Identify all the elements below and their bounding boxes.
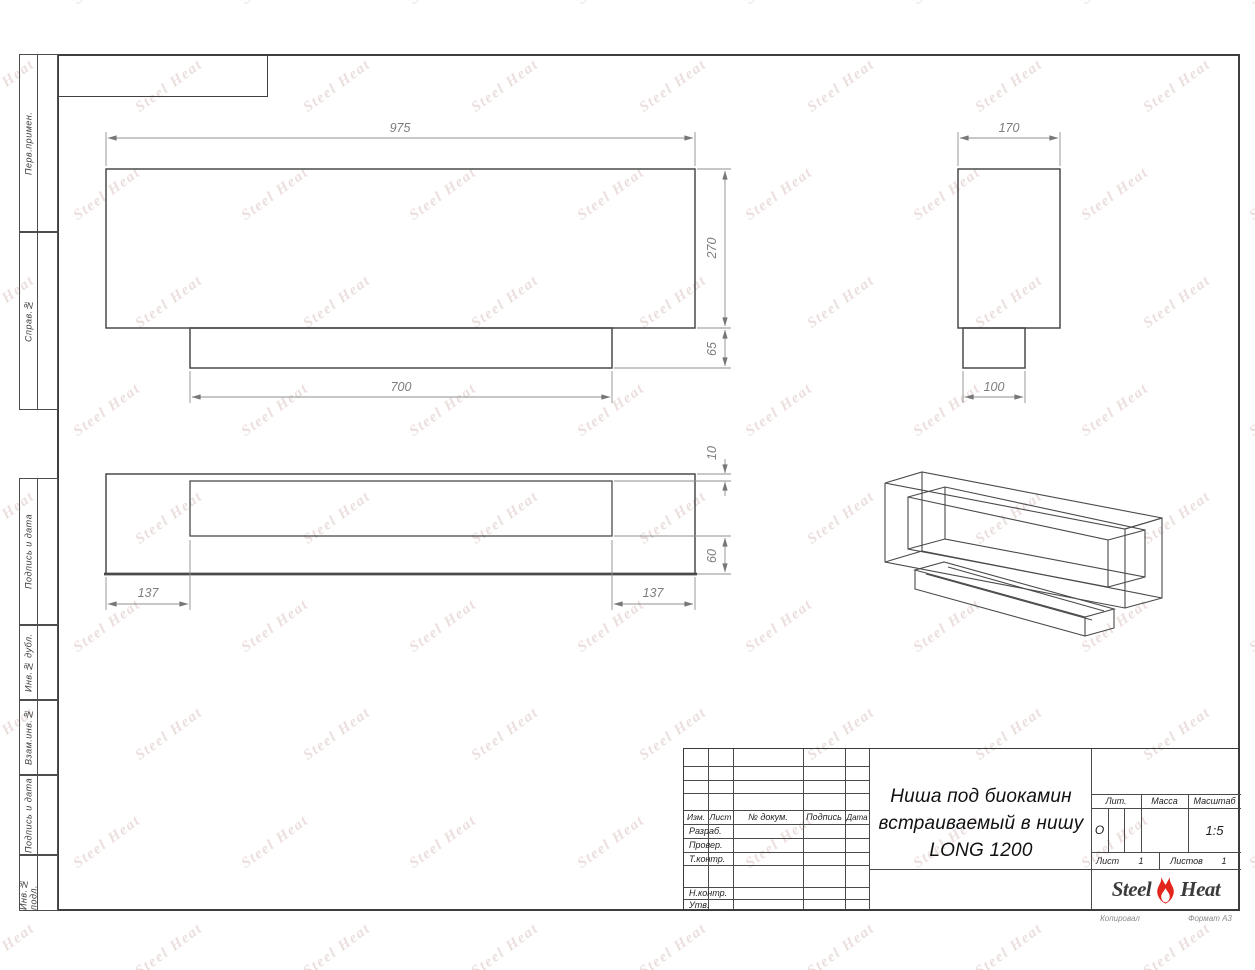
copied-label: Копировал: [1075, 914, 1165, 923]
top-left-stamp-box: [57, 54, 268, 97]
row-prover: Провер.: [684, 838, 733, 852]
margin-cell-perv-primen: Перв.примен.: [19, 54, 38, 232]
margin-cell-inv-podl: Инв.№ подл.: [19, 855, 38, 911]
row-utv: Утв.: [684, 899, 733, 911]
steelheat-logo: Steel Heat: [1091, 869, 1241, 910]
margin-cell-blank-6: [37, 775, 58, 855]
document-title: Ниша под биокамин встраиваемый в нишу LO…: [871, 783, 1091, 864]
drawing-sheet: Steel HeatSteel HeatSteel HeatSteel Heat…: [0, 0, 1255, 970]
col-podpis: Подпись: [803, 810, 845, 824]
col-list: Лист: [708, 810, 733, 824]
margin-cell-blank-5: [37, 700, 58, 775]
margin-cell-blank-7: [37, 855, 58, 911]
logo-heat-text: Heat: [1180, 877, 1220, 902]
margin-cell-podpis-data-2: Подпись и дата: [19, 775, 38, 855]
scale-value: 1:5: [1188, 808, 1241, 852]
margin-cell-blank-2: [37, 232, 58, 410]
col-data: Дата: [845, 810, 869, 824]
col-izm: Изм.: [684, 810, 708, 824]
lit-label: Лит.: [1091, 794, 1141, 808]
row-tkontr: Т.контр.: [684, 852, 733, 865]
sheet-value: 1: [1131, 852, 1151, 869]
sheets-label: Листов: [1164, 852, 1209, 869]
margin-cell-blank-1: [37, 54, 58, 232]
row-nkontr: Н.контр.: [684, 887, 733, 899]
format-label: Формат А3: [1173, 914, 1247, 923]
margin-cell-blank-4: [37, 625, 58, 700]
col-dokum: № докум.: [733, 810, 803, 824]
margin-cell-sprav-no: Справ.№: [19, 232, 38, 410]
title-block: Изм. Лист № докум. Подпись Дата Разраб. …: [683, 748, 1240, 911]
sheet-label: Лист: [1091, 852, 1131, 869]
mass-label: Масса: [1141, 794, 1188, 808]
margin-cell-podpis-data-1: Подпись и дата: [19, 478, 38, 625]
sheets-value: 1: [1214, 852, 1234, 869]
margin-cell-blank-3: [37, 478, 58, 625]
row-razrab: Разраб.: [684, 824, 733, 838]
flame-icon: [1154, 875, 1177, 905]
scale-label: Масштаб: [1188, 794, 1241, 808]
margin-cell-vzam-inv: Взам.инв.№: [19, 700, 38, 775]
logo-steel-text: Steel: [1112, 877, 1152, 902]
lit-value: О: [1091, 808, 1108, 852]
margin-cell-inv-dubl: Инв.№ дубл.: [19, 625, 38, 700]
